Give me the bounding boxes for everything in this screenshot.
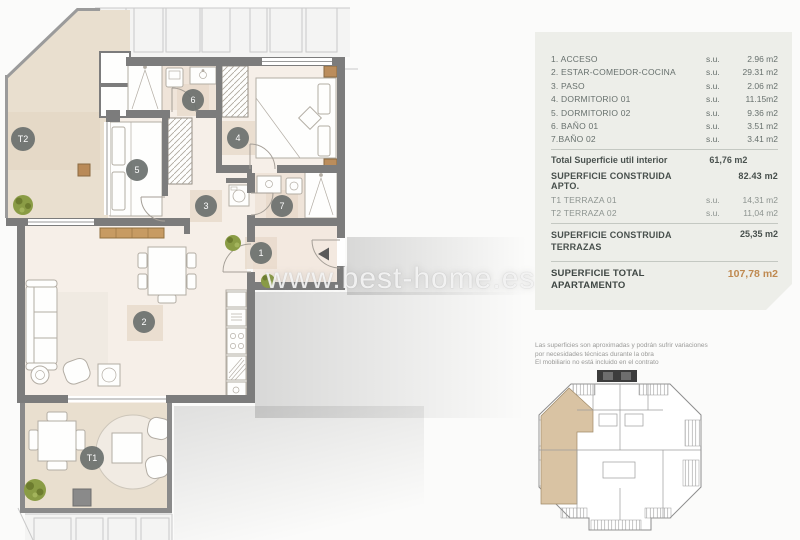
room-label-2: 2	[133, 311, 155, 333]
divider	[551, 223, 778, 224]
room-value: 2.96 m2	[726, 53, 778, 66]
shower-01	[128, 64, 162, 112]
constructed-row: SUPERFICIE CONSTRUIDA APTO. 82.43 m2	[551, 171, 778, 191]
room-name: 4. DORMITORIO 01	[551, 93, 706, 106]
su-label: s.u.	[706, 53, 726, 66]
room-row: 5. DORMITORIO 02 s.u. 9.36 m2	[551, 107, 778, 120]
room-label-7: 7	[271, 195, 293, 217]
su-label: s.u.	[706, 207, 726, 220]
plant-icon	[225, 235, 241, 251]
terrace-low-table	[112, 433, 142, 463]
plant-icon	[24, 479, 46, 501]
terraces-total-row: SUPERFICIE CONSTRUIDA TERRAZAS 25,35 m2	[551, 229, 778, 253]
disclaimer-line: Las superficies son aproximadas y podrán…	[535, 342, 708, 351]
side-table	[31, 366, 49, 384]
room-list: 1. ACCESO s.u. 2.96 m2 2. ESTAR-COMEDOR-…	[551, 53, 778, 147]
sink-02	[257, 176, 281, 193]
su-label: s.u.	[706, 120, 726, 133]
kitchen-counter	[226, 290, 247, 402]
disclaimer-line: por necesidades técnicas durante la obra	[535, 351, 708, 360]
constructed-label: SUPERFICIE CONSTRUIDA APTO.	[551, 171, 699, 191]
room-label-t2: T2	[11, 127, 35, 151]
grand-total-row: SUPERFICIE TOTAL APARTAMENTO 107,78 m2	[551, 268, 778, 292]
bed-double	[256, 78, 336, 158]
room-value: 2.06 m2	[726, 80, 778, 93]
room-name: 7.BAÑO 02	[551, 133, 706, 146]
terrace-stool	[78, 164, 90, 176]
su-label: s.u.	[706, 194, 726, 207]
room-name: 3. PASO	[551, 80, 706, 93]
divider	[551, 261, 778, 262]
terrace-row: T2 TERRAZA 02 s.u. 11,04 m2	[551, 207, 778, 220]
room-value: 3.51 m2	[726, 120, 778, 133]
wardrobe-bedroom-01	[222, 66, 248, 117]
room-value: 29.31 m2	[726, 66, 778, 79]
room-row: 1. ACCESO s.u. 2.96 m2	[551, 53, 778, 66]
terrace-value: 11,04 m2	[726, 207, 778, 220]
svg-text:2: 2	[141, 317, 146, 327]
grand-total-label: SUPERFICIE TOTAL APARTAMENTO	[551, 268, 698, 292]
room-value: 11.15m2	[726, 93, 778, 106]
room-value: 9.36 m2	[726, 107, 778, 120]
su-label: s.u.	[706, 93, 726, 106]
sink-01	[190, 67, 216, 84]
room-row: 2. ESTAR-COMEDOR-COCINA s.u. 29.31 m2	[551, 66, 778, 79]
terraces-total-value: 25,35 m2	[698, 229, 778, 239]
terrace-list: T1 TERRAZA 01 s.u. 14,31 m2 T2 TERRAZA 0…	[551, 194, 778, 220]
legend-panel: 1. ACCESO s.u. 2.96 m2 2. ESTAR-COMEDOR-…	[535, 32, 792, 310]
su-label: s.u.	[706, 133, 726, 146]
svg-text:4: 4	[235, 133, 240, 143]
room-row: 4. DORMITORIO 01 s.u. 11.15m2	[551, 93, 778, 106]
svg-text:6: 6	[190, 95, 195, 105]
terrace-row: T1 TERRAZA 01 s.u. 14,31 m2	[551, 194, 778, 207]
room-label-5: 5	[126, 159, 148, 181]
building-key-plan	[539, 370, 701, 530]
divider	[551, 149, 778, 150]
disclaimer-line: El mobiliario no está incluido en el con…	[535, 359, 708, 368]
svg-text:7: 7	[279, 201, 284, 211]
disclaimer: Las superficies son aproximadas y podrán…	[535, 342, 708, 368]
su-label: s.u.	[706, 107, 726, 120]
room-label-4: 4	[227, 127, 249, 149]
sofa	[26, 280, 57, 370]
terrace-name: T2 TERRAZA 02	[551, 207, 706, 220]
total-util-value: 61,76 m2	[667, 155, 747, 165]
planter-box	[73, 489, 91, 506]
toilet-02	[286, 178, 302, 194]
svg-text:1: 1	[258, 248, 263, 258]
room-row: 7.BAÑO 02 s.u. 3.41 m2	[551, 133, 778, 146]
room-label-3: 3	[195, 195, 217, 217]
pouf	[98, 364, 120, 386]
room-name: 5. DORMITORIO 02	[551, 107, 706, 120]
room-label-t1: T1	[80, 446, 104, 470]
room-row: 6. BAÑO 01 s.u. 3.51 m2	[551, 120, 778, 133]
total-util-row: Total Superficie util interior 61,76 m2	[551, 155, 778, 165]
room-name: 2. ESTAR-COMEDOR-COCINA	[551, 66, 706, 79]
room-name: 6. BAÑO 01	[551, 120, 706, 133]
grand-total-value: 107,78 m2	[698, 268, 778, 280]
svg-text:T2: T2	[18, 134, 29, 144]
terrace-closet	[100, 52, 130, 117]
room-value: 3.41 m2	[726, 133, 778, 146]
terraces-total-label: SUPERFICIE CONSTRUIDA TERRAZAS	[551, 229, 698, 253]
plant-icon	[261, 274, 275, 288]
nightstand	[324, 66, 337, 77]
su-label: s.u.	[706, 66, 726, 79]
terrace-name: T1 TERRAZA 01	[551, 194, 706, 207]
living-rug	[58, 292, 108, 370]
floorplan-page: { "watermark": "www.best-home.es", "plan…	[0, 0, 800, 540]
svg-text:3: 3	[203, 201, 208, 211]
wardrobe-bedroom-02	[168, 118, 192, 184]
svg-text:T1: T1	[87, 453, 98, 463]
su-label: s.u.	[706, 80, 726, 93]
room-label-6: 6	[182, 89, 204, 111]
shower-02	[305, 172, 337, 218]
room-row: 3. PASO s.u. 2.06 m2	[551, 80, 778, 93]
terrace-value: 14,31 m2	[726, 194, 778, 207]
washing-machine	[229, 185, 249, 206]
plant-icon	[13, 195, 33, 215]
room-label-1: 1	[250, 242, 272, 264]
svg-text:5: 5	[134, 165, 139, 175]
room-name: 1. ACCESO	[551, 53, 706, 66]
sideboard	[100, 228, 164, 238]
constructed-value: 82.43 m2	[699, 171, 778, 181]
toilet-01	[166, 68, 183, 87]
total-util-label: Total Superficie util interior	[551, 155, 667, 165]
